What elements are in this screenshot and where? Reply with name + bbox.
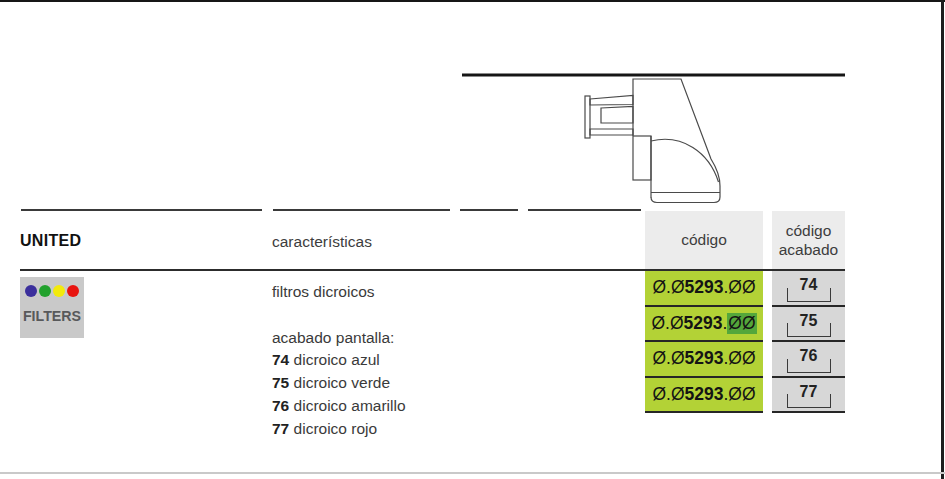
brand-title: UNITED xyxy=(20,232,81,250)
finish-option: 76 dicroico amarillo xyxy=(272,395,502,418)
finish-code: 74 xyxy=(800,276,818,294)
column-header-codigo-acabado: código acabado xyxy=(772,211,845,269)
codigo-cell: Ø.Ø5293.ØØ xyxy=(645,271,763,307)
code-tail: ØØ xyxy=(728,384,755,405)
page-top-rule xyxy=(0,0,945,2)
finish-option-number: 75 xyxy=(272,374,289,391)
codigo-cell: Ø.Ø5293.ØØ xyxy=(645,378,763,414)
code-number: 5293 xyxy=(684,313,723,334)
code-number: 5293 xyxy=(685,277,724,298)
header-rule-empty-col2 xyxy=(528,209,641,211)
code-prefix: Ø.Ø xyxy=(651,313,683,334)
filter-dots xyxy=(20,285,84,297)
luminaire-technical-drawing xyxy=(440,60,860,210)
code-tail: ØØ xyxy=(728,277,755,298)
filters-badge-label: FILTERS xyxy=(21,308,84,324)
page-right-rule xyxy=(941,0,944,479)
code-prefix: Ø.Ø xyxy=(652,277,684,298)
header-rule-empty-col1 xyxy=(460,209,518,211)
caracteristica-line: acabado pantalla: xyxy=(272,327,502,350)
header-rule-caracteristicas xyxy=(273,209,450,211)
codigo-cell: Ø.Ø5293.ØØ xyxy=(645,307,763,343)
codigo-cell: Ø.Ø5293.ØØ xyxy=(645,342,763,378)
finish-option: 75 dicroico verde xyxy=(272,372,502,395)
caracteristica-line: filtros dicroicos xyxy=(272,281,502,304)
finish-option-number: 77 xyxy=(272,420,289,437)
code-number: 5293 xyxy=(685,348,724,369)
column-header-codigo-label: código xyxy=(681,231,727,249)
code-prefix: Ø.Ø xyxy=(652,384,684,405)
finish-code: 75 xyxy=(800,312,818,330)
filter-dot-red-icon xyxy=(67,285,79,297)
filters-badge: FILTERS xyxy=(20,277,84,338)
header-rule-brand xyxy=(21,209,262,211)
finish-code: 77 xyxy=(800,383,818,401)
blank-line xyxy=(272,304,502,327)
filter-dot-green-icon xyxy=(39,285,51,297)
finish-option-number: 76 xyxy=(272,397,289,414)
code-prefix: Ø.Ø xyxy=(652,348,684,369)
column-header-codigo-acabado-label: código acabado xyxy=(778,221,840,259)
caracteristicas-text: filtros dicroicos acabado pantalla: 74 d… xyxy=(272,281,502,441)
catalog-page: UNITED características código código aca… xyxy=(0,0,945,479)
codigo-acabado-cell: 77 xyxy=(772,378,845,414)
finish-option-label: dicroico azul xyxy=(294,351,380,368)
finish-option-number: 74 xyxy=(272,351,289,368)
finish-option-label: dicroico amarillo xyxy=(294,397,406,414)
code-number: 5293 xyxy=(685,384,724,405)
finish-option-label: dicroico verde xyxy=(294,374,391,391)
finish-option: 74 dicroico azul xyxy=(272,349,502,372)
page-bottom-rule xyxy=(0,472,945,474)
column-header-codigo: código xyxy=(645,211,763,269)
codigo-acabado-cell: 75 xyxy=(772,307,845,343)
codigo-acabado-cell: 76 xyxy=(772,342,845,378)
filter-dot-yellow-icon xyxy=(53,285,65,297)
finish-option: 77 dicroico rojo xyxy=(272,418,502,441)
codigo-acabado-cell: 74 xyxy=(772,271,845,307)
code-tail: ØØ xyxy=(728,348,755,369)
codigo-acabado-column: 74 75 76 77 xyxy=(772,271,845,413)
code-tail-highlighted: ØØ xyxy=(727,313,756,334)
finish-code: 76 xyxy=(800,347,818,365)
filter-dot-blue-icon xyxy=(25,285,37,297)
codigo-column: Ø.Ø5293.ØØ Ø.Ø5293.ØØ Ø.Ø5293.ØØ Ø.Ø5293… xyxy=(645,271,763,413)
column-header-caracteristicas: características xyxy=(272,233,372,251)
finish-option-label: dicroico rojo xyxy=(294,420,378,437)
